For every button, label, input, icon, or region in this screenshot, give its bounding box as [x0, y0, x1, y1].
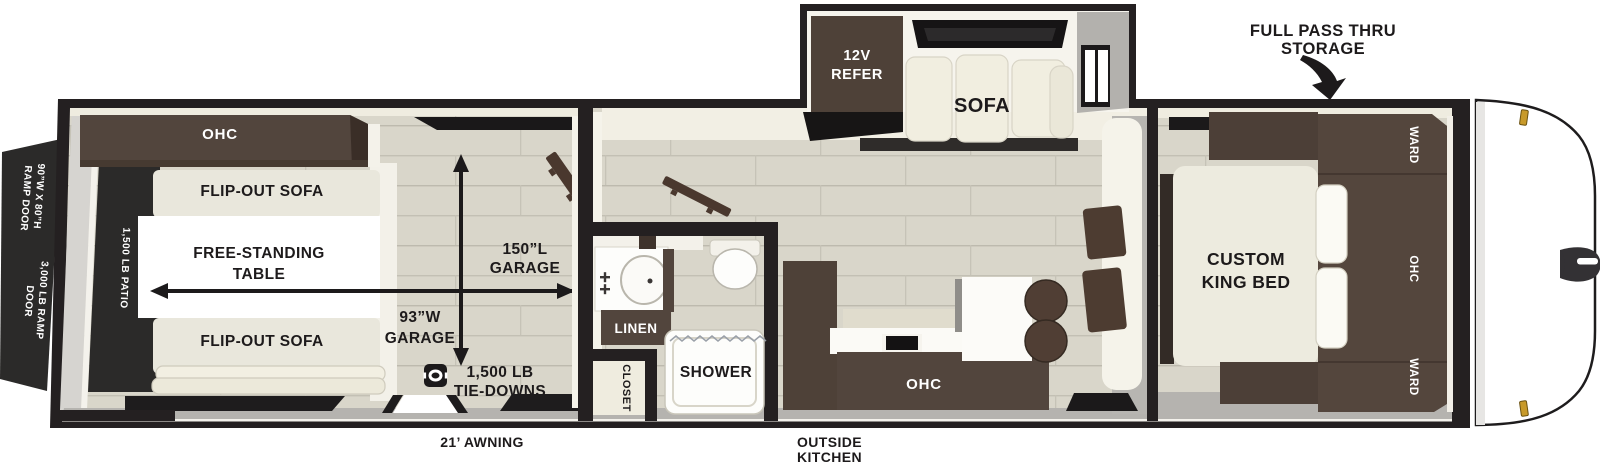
svg-text:WARD: WARD [1407, 358, 1419, 396]
svg-text:CLOSET: CLOSET [620, 364, 632, 412]
svg-text:KING BED: KING BED [1202, 272, 1291, 292]
svg-text:CUSTOM: CUSTOM [1207, 249, 1285, 269]
svg-text:LINEN: LINEN [615, 321, 658, 336]
svg-text:21’ AWNING: 21’ AWNING [440, 434, 524, 450]
svg-text:OHC: OHC [1407, 255, 1419, 282]
svg-text:KITCHEN: KITCHEN [797, 449, 862, 465]
svg-text:TABLE: TABLE [233, 266, 286, 283]
svg-text:SOFA: SOFA [954, 95, 1010, 117]
svg-text:FLIP-OUT SOFA: FLIP-OUT SOFA [200, 333, 323, 350]
svg-text:OHC: OHC [906, 376, 942, 393]
svg-text:93”W: 93”W [399, 309, 440, 326]
svg-text:150”L: 150”L [502, 241, 547, 258]
svg-text:GARAGE: GARAGE [490, 260, 560, 277]
svg-text:DOOR: DOOR [22, 285, 35, 318]
svg-text:FREE-STANDING: FREE-STANDING [193, 245, 325, 262]
svg-text:STORAGE: STORAGE [1281, 40, 1365, 58]
svg-text:12V: 12V [843, 48, 870, 64]
svg-text:FLIP-OUT SOFA: FLIP-OUT SOFA [200, 183, 323, 200]
svg-text:REFER: REFER [831, 67, 883, 83]
svg-text:SHOWER: SHOWER [680, 364, 752, 381]
svg-text:OUTSIDE: OUTSIDE [797, 434, 862, 450]
svg-text:OHC: OHC [202, 126, 238, 143]
svg-text:1,500 LB: 1,500 LB [467, 364, 534, 381]
svg-text:FULL PASS THRU: FULL PASS THRU [1250, 22, 1396, 40]
svg-text:GARAGE: GARAGE [385, 330, 455, 347]
svg-text:WARD: WARD [1407, 126, 1419, 164]
